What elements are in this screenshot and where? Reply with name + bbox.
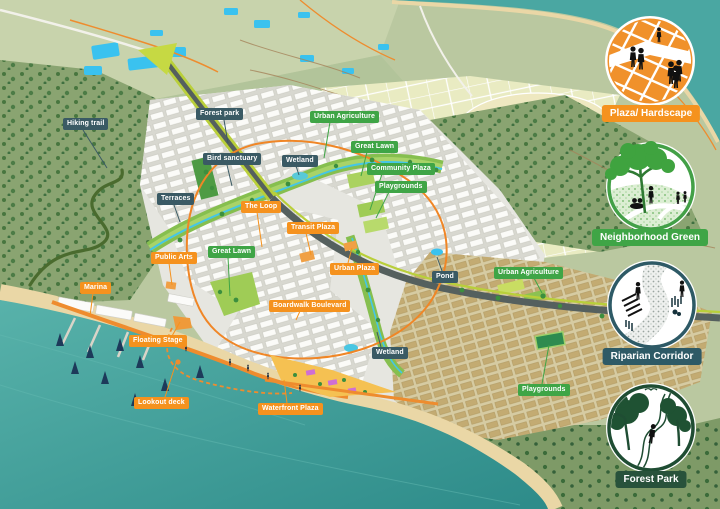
- map-label-great-lawn-n: Great Lawn: [351, 141, 398, 153]
- map-label-boardwalk-boulevard: Boardwalk Boulevard: [269, 300, 350, 312]
- map-label-pond: Pond: [432, 271, 458, 283]
- map-label-community-plaza: Community Plaza: [367, 163, 435, 175]
- public-arts-area: [165, 281, 176, 289]
- map-label-terraces: Terraces: [157, 193, 194, 205]
- map-label-wetland-s: Wetland: [372, 347, 408, 359]
- map-label-great-lawn-s: Great Lawn: [208, 246, 255, 258]
- map-label-playgrounds-s: Playgrounds: [518, 384, 570, 396]
- map-label-the-loop: The Loop: [241, 201, 281, 213]
- forest-park-icon: [603, 380, 699, 476]
- map-label-urban-agriculture-n: Urban Agriculture: [310, 111, 379, 123]
- plaza-hardscape-icon: [602, 13, 698, 109]
- map-label-waterfront-plaza: Waterfront Plaza: [258, 403, 323, 415]
- wetland-north-pond: [292, 172, 308, 180]
- map-label-transit-plaza: Transit Plaza: [287, 222, 339, 234]
- masterplan-poster: Hiking trail Forest park Bird sanctuary …: [0, 0, 720, 509]
- map-label-playgrounds-n: Playgrounds: [375, 181, 427, 193]
- floating-stage-platform: [173, 316, 192, 330]
- legend-label-neighborhood-green: Neighborhood Green: [592, 229, 708, 246]
- map-label-forest-park: Forest park: [196, 108, 243, 120]
- map-label-floating-stage: Floating Stage: [129, 335, 187, 347]
- pond: [431, 249, 443, 256]
- map-label-urban-agriculture-e: Urban Agriculture: [494, 267, 563, 279]
- map-label-wetland-n: Wetland: [282, 155, 318, 167]
- map-label-urban-plaza: Urban Plaza: [330, 263, 379, 275]
- map-label-marina: Marina: [80, 282, 111, 294]
- map-label-bird-sanctuary: Bird sanctuary: [203, 153, 261, 165]
- map-label-lookout-deck: Lookout deck: [134, 397, 189, 409]
- legend-label-riparian-corridor: Riparian Corridor: [603, 348, 702, 365]
- legend-label-plaza-hardscape: Plaza/ Hardscape: [602, 105, 700, 122]
- map-label-public-arts: Public Arts: [151, 252, 197, 264]
- legend-label-forest-park: Forest Park: [615, 471, 686, 488]
- neighborhood-green-icon: [601, 137, 701, 237]
- map-label-hiking-trail: Hiking trail: [63, 118, 108, 130]
- riparian-corridor-icon: [604, 257, 700, 353]
